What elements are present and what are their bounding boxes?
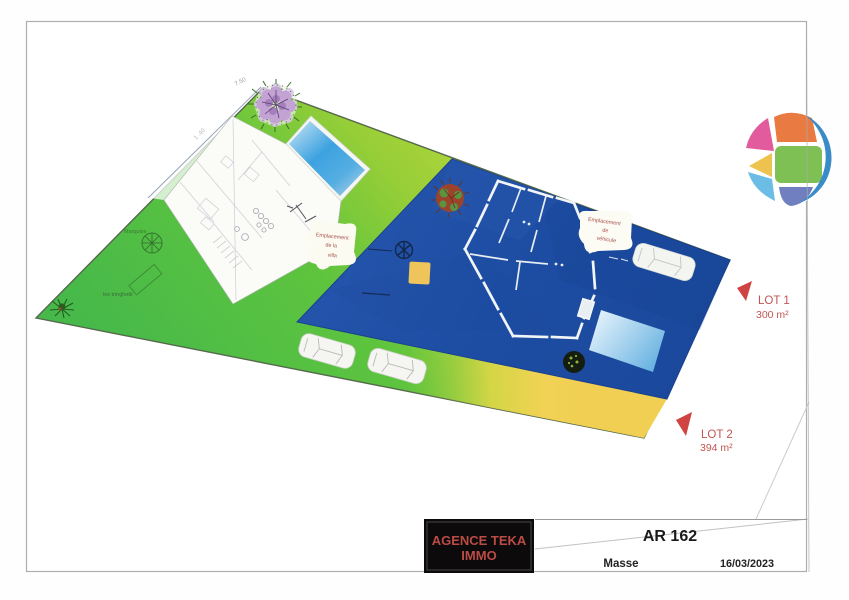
- svg-text:AR 162: AR 162: [643, 528, 697, 545]
- svg-text:394 m²: 394 m²: [700, 442, 733, 454]
- svg-text:16/03/2023: 16/03/2023: [720, 558, 774, 570]
- svg-text:Marquise: Marquise: [124, 229, 147, 235]
- svg-text:300 m²: 300 m²: [756, 309, 789, 321]
- svg-text:LOT 1: LOT 1: [758, 295, 790, 307]
- svg-text:Masse: Masse: [603, 558, 638, 570]
- svg-text:de la: de la: [325, 242, 337, 249]
- svg-text:IMMO: IMMO: [461, 548, 496, 563]
- svg-text:les tringhetti: les tringhetti: [103, 292, 133, 298]
- svg-text:AGENCE TEKA: AGENCE TEKA: [432, 533, 527, 548]
- svg-text:villa: villa: [327, 253, 337, 260]
- svg-text:LOT 2: LOT 2: [701, 429, 733, 441]
- svg-text:de: de: [602, 228, 609, 235]
